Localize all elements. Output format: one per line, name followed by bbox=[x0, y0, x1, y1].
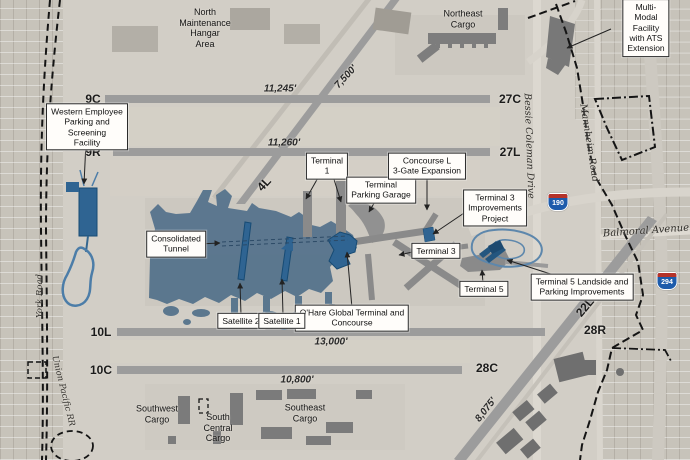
leader-ohare-global bbox=[347, 252, 352, 308]
callout-terminal-parking-garage: Terminal Parking Garage bbox=[346, 177, 416, 204]
runway-label-28r: 28R bbox=[584, 323, 606, 337]
callout-terminal-3: Terminal 3 bbox=[411, 243, 460, 259]
runway-length-9c: 11,245' bbox=[264, 84, 296, 95]
callout-ohare-global-terminal: O'Hare Global Terminal and Concourse bbox=[295, 305, 409, 332]
interstate-190-shield: 190 bbox=[548, 193, 569, 211]
runway-length-10l: 13,000' bbox=[315, 337, 348, 348]
label-north-maintenance: North Maintenance Hangar Area bbox=[179, 7, 231, 49]
south-cargo-buildings bbox=[168, 389, 372, 445]
western-facility-shape bbox=[79, 188, 97, 236]
southeast-warehouses bbox=[496, 352, 624, 459]
callout-terminal-5: Terminal 5 bbox=[459, 281, 508, 297]
interstate-294-shield: 294 bbox=[657, 272, 678, 290]
callout-terminal-1: Terminal 1 bbox=[306, 153, 348, 180]
label-southwest-cargo: Southwest Cargo bbox=[136, 403, 178, 424]
callout-terminal-3-improvements: Terminal 3 Improvements Project bbox=[463, 189, 527, 226]
western-facility-loop-road bbox=[63, 248, 94, 306]
label-northeast-cargo: Northeast Cargo bbox=[443, 8, 482, 29]
concourse-l-expansion-shape bbox=[423, 227, 435, 242]
northeast-cargo-building bbox=[428, 33, 496, 44]
runway-label-28c: 28C bbox=[476, 361, 498, 375]
callout-concourse-l-expansion: Concourse L 3-Gate Expansion bbox=[388, 153, 466, 180]
label-south-central-cargo: South Central Cargo bbox=[203, 412, 232, 444]
boundary-parcel-east bbox=[595, 96, 655, 160]
callout-satellite-1: Satellite 1 bbox=[258, 313, 305, 329]
leader-terminal-1-a bbox=[306, 176, 319, 199]
runway-label-10c: 10C bbox=[90, 363, 112, 377]
runway-length-10c: 10,800' bbox=[281, 375, 314, 386]
runway-label-27l: 27L bbox=[500, 145, 521, 159]
interstate-190-number: 190 bbox=[549, 198, 568, 209]
interstate-294-number: 294 bbox=[658, 277, 677, 288]
callout-western-employee-facility: Western Employee Parking and Screening F… bbox=[46, 103, 128, 150]
runway-10c-28c bbox=[117, 366, 462, 374]
callout-multi-modal-facility: Multi-Modal Facility with ATS Extension bbox=[622, 0, 669, 57]
runway-label-10l: 10L bbox=[91, 325, 112, 339]
label-southeast-cargo: Southeast Cargo bbox=[285, 402, 326, 423]
runway-label-27c: 27C bbox=[499, 92, 521, 106]
callout-consolidated-tunnel: Consolidated Tunnel bbox=[146, 231, 206, 258]
runway-9c-27c bbox=[105, 95, 490, 103]
concourse-b-building bbox=[303, 191, 312, 237]
airport-map: North Maintenance Hangar Area Northeast … bbox=[0, 0, 690, 460]
label-york-road: York Road bbox=[35, 274, 45, 318]
runway-length-9r: 11,260' bbox=[268, 138, 300, 149]
callout-terminal-5-landside: Terminal 5 Landside and Parking Improvem… bbox=[531, 274, 634, 301]
